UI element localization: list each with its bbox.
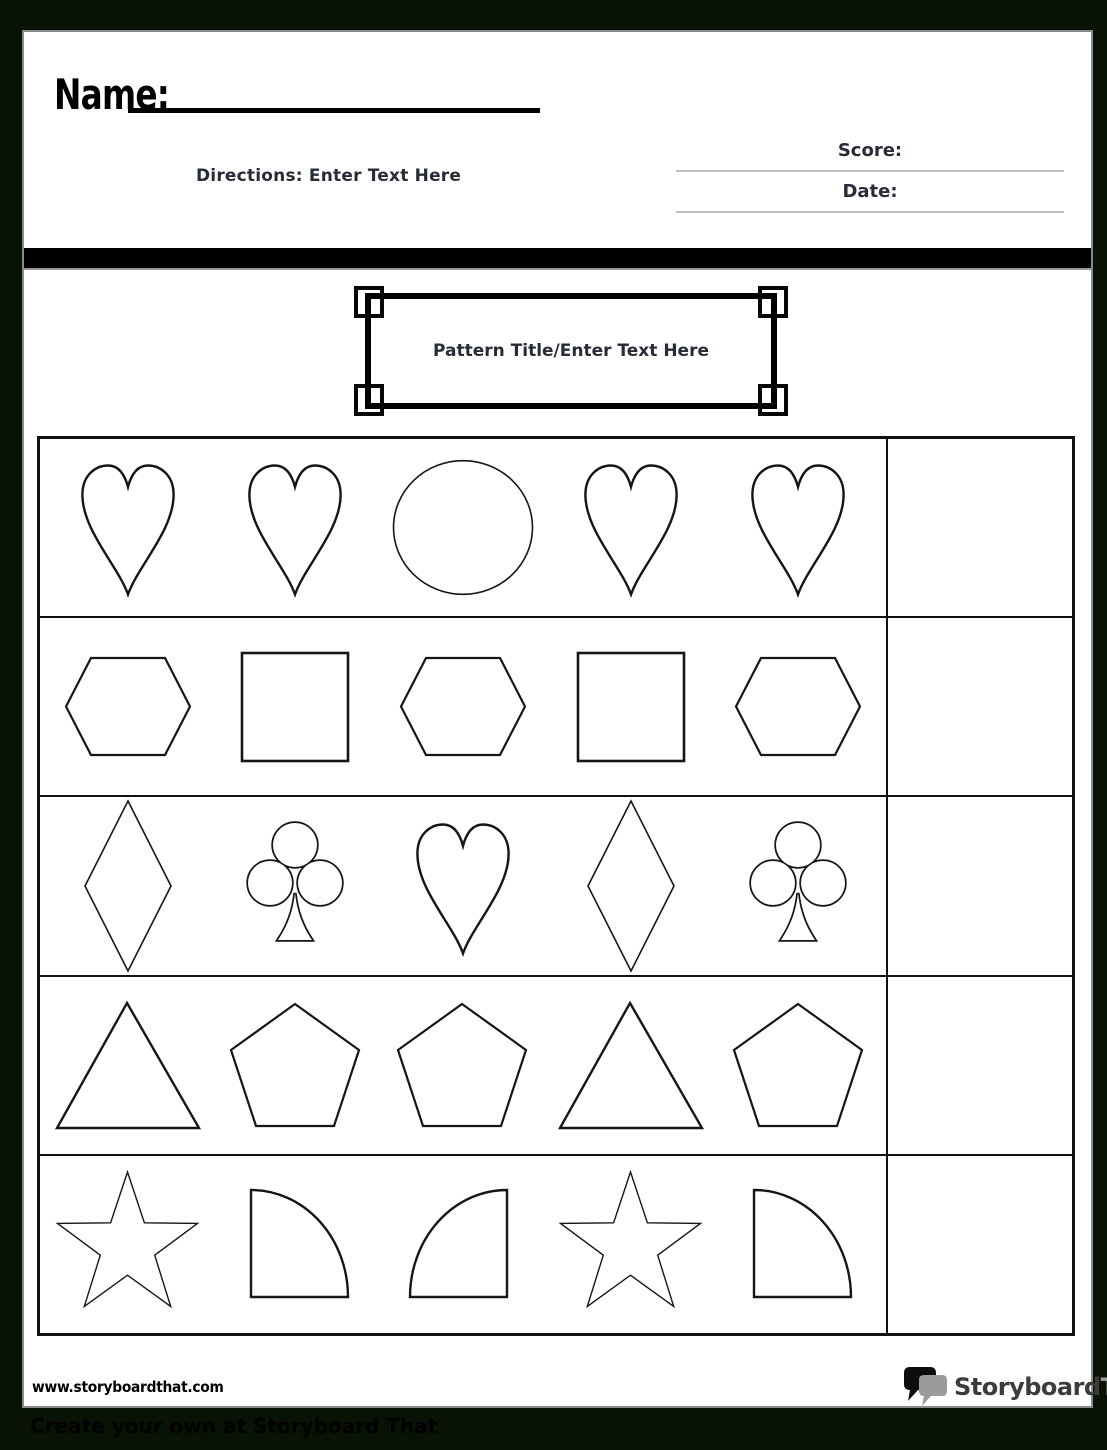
pattern-row — [40, 1154, 1072, 1333]
answer-cell[interactable] — [886, 618, 1072, 795]
square-shape — [212, 650, 380, 764]
club-shape — [714, 815, 882, 958]
pattern-row — [40, 975, 1072, 1154]
date-label: Date: — [676, 181, 1064, 202]
diamond-shape — [547, 798, 715, 974]
answer-cell[interactable] — [886, 797, 1072, 974]
create-your-own-text: Create your own at Storyboard That — [30, 1414, 437, 1438]
logo-wordmark: StoryboardThat — [954, 1373, 1107, 1401]
star-shape — [547, 1166, 715, 1322]
pattern-title-placeholder[interactable]: Pattern Title/Enter Text Here — [371, 299, 771, 403]
quarter-circle-left-shape — [379, 1183, 547, 1305]
answer-cell[interactable] — [886, 439, 1072, 616]
diamond-shape — [44, 798, 212, 974]
date-fill-line — [676, 211, 1064, 213]
pattern-shapes-cell — [40, 977, 886, 1154]
pentagon-shape — [714, 1000, 882, 1131]
pentagon-shape — [379, 1000, 547, 1131]
name-fill-line — [128, 108, 540, 113]
divider-bar — [24, 248, 1091, 270]
triangle-shape — [44, 999, 212, 1132]
club-shape — [212, 815, 380, 958]
storyboardthat-logo: StoryboardThat — [902, 1364, 1107, 1410]
pattern-grid — [37, 436, 1075, 1336]
quarter-circle-right-shape — [714, 1183, 882, 1305]
heart-shape — [44, 456, 212, 599]
hexagon-shape — [714, 650, 882, 763]
pattern-shapes-cell — [40, 439, 886, 616]
hexagon-shape — [379, 650, 547, 763]
directions-placeholder[interactable]: Directions: Enter Text Here — [196, 166, 461, 186]
score-date-block: Score: Date: — [676, 140, 1064, 213]
worksheet-page: Name: Directions: Enter Text Here Score:… — [22, 30, 1093, 1408]
pattern-row — [40, 439, 1072, 616]
worksheet-canvas: Name: Directions: Enter Text Here Score:… — [0, 0, 1107, 1450]
pentagon-shape — [212, 1000, 380, 1131]
pattern-row — [40, 795, 1072, 974]
circle-shape — [379, 459, 547, 596]
quarter-circle-right-shape — [212, 1183, 380, 1305]
answer-cell[interactable] — [886, 977, 1072, 1154]
pattern-shapes-cell — [40, 618, 886, 795]
pattern-title-box[interactable]: Pattern Title/Enter Text Here — [365, 293, 777, 409]
triangle-shape — [547, 999, 715, 1132]
square-shape — [547, 650, 715, 764]
heart-shape — [714, 456, 882, 599]
heart-shape — [379, 815, 547, 958]
answer-cell[interactable] — [886, 1156, 1072, 1333]
heart-shape — [212, 456, 380, 599]
star-shape — [44, 1166, 212, 1322]
score-fill-line — [676, 170, 1064, 172]
pattern-shapes-cell — [40, 1156, 886, 1333]
logo-word-that: That — [1101, 1373, 1107, 1401]
pattern-row — [40, 616, 1072, 795]
pattern-shapes-cell — [40, 797, 886, 974]
heart-shape — [547, 456, 715, 599]
website-url: www.storyboardthat.com — [32, 1378, 224, 1396]
speech-bubbles-icon — [902, 1364, 948, 1410]
hexagon-shape — [44, 650, 212, 763]
logo-word-storyboard: Storyboard — [954, 1373, 1101, 1401]
score-label: Score: — [676, 140, 1064, 161]
